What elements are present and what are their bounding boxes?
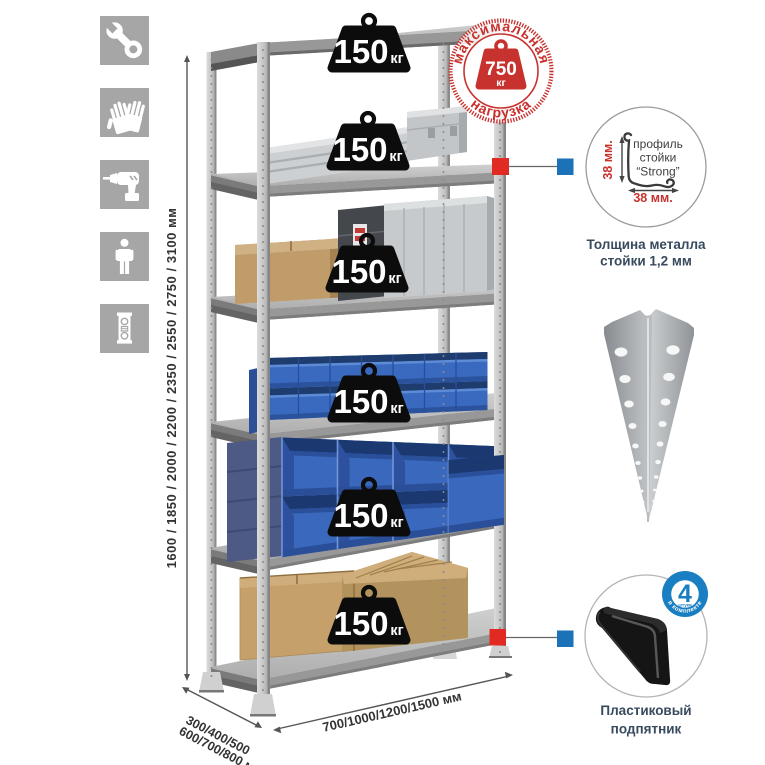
svg-text:“Strong”: “Strong” (636, 165, 679, 179)
svg-text:1600 / 1850 / 2000 / 2200 / 23: 1600 / 1850 / 2000 / 2200 / 2350 / 2550 … (164, 208, 179, 569)
svg-text:кг: кг (496, 77, 506, 89)
svg-text:38 мм.: 38 мм. (633, 191, 672, 205)
svg-text:700/1000/1200/1500 мм: 700/1000/1200/1500 мм (321, 688, 463, 734)
svg-text:стойки 1,2 мм: стойки 1,2 мм (600, 254, 692, 269)
svg-text:Пластиковый: Пластиковый (600, 703, 691, 718)
svg-text:штуки: штуки (678, 603, 692, 608)
svg-text:38 мм.: 38 мм. (601, 140, 615, 179)
svg-text:подпятник: подпятник (611, 722, 682, 737)
svg-text:профиль: профиль (633, 137, 683, 151)
svg-text:Толщина металла: Толщина металла (586, 237, 706, 252)
svg-text:стойки: стойки (640, 151, 677, 165)
